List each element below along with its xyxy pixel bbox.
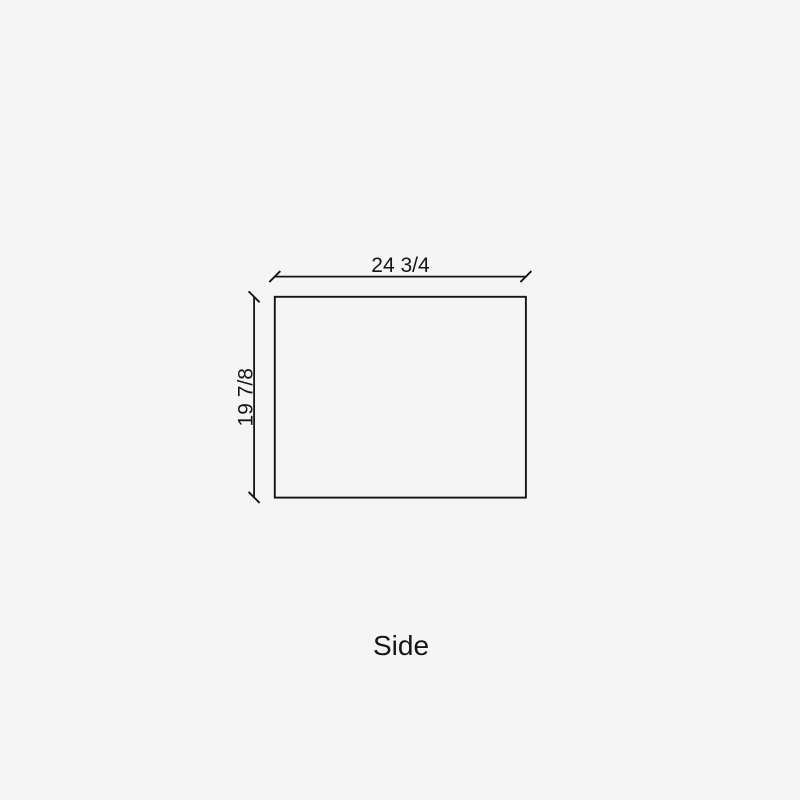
svg-text:24 3/4: 24 3/4 bbox=[371, 254, 430, 277]
svg-text:19 7/8: 19 7/8 bbox=[234, 368, 257, 426]
svg-text:Side: Side bbox=[373, 630, 429, 661]
